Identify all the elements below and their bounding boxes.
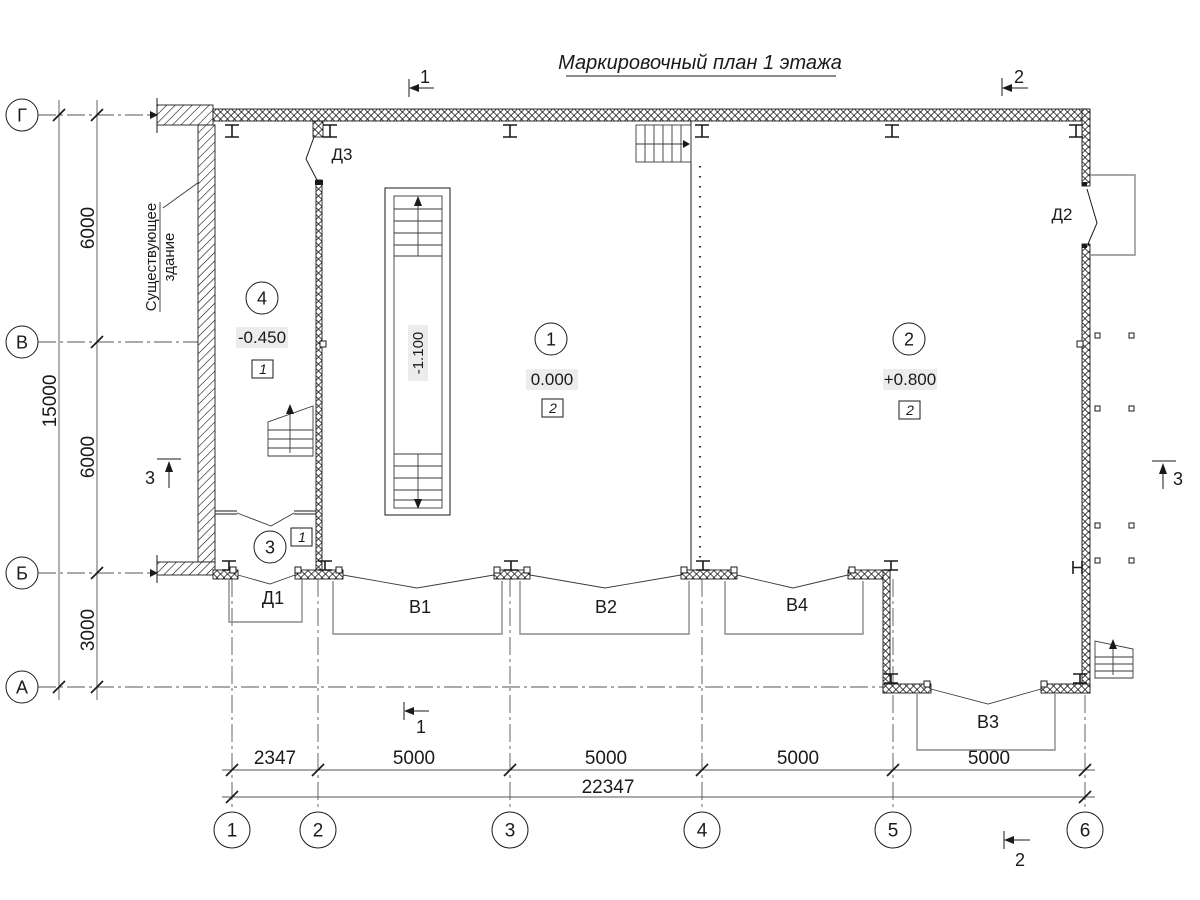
axis-row-v: В — [16, 332, 28, 352]
axis-col-2: 2 — [313, 821, 324, 842]
axis-col-3: 3 — [505, 821, 516, 842]
left-stair-arrow — [286, 404, 294, 414]
room1-elevation: 0.000 — [531, 370, 574, 389]
axis-row-a: А — [16, 677, 28, 697]
room4-number: 4 — [257, 288, 267, 308]
room1-type: 2 — [548, 400, 557, 416]
section-3-left: 3 — [145, 459, 181, 488]
section-2-bottom-label: 2 — [1015, 850, 1025, 870]
room3-door-leaves — [237, 513, 294, 526]
wall-top — [213, 109, 1090, 121]
stair-up-arrow — [414, 196, 422, 206]
gate-v3-label: В3 — [977, 712, 999, 732]
section-1-bottom: 1 — [404, 702, 429, 737]
room-marker-1: 1 0.000 2 — [526, 323, 578, 417]
existing-label-line1: Существующее — [143, 203, 160, 311]
wall-right-upper — [1082, 109, 1090, 186]
gate-v3-symbol — [931, 689, 1041, 704]
axis-row-g: Г — [17, 105, 27, 125]
gate-v4-label: В4 — [786, 595, 808, 615]
existing-building-label: Существующее здание — [143, 202, 178, 312]
room3-number: 3 — [265, 537, 275, 557]
room2-type: 2 — [905, 402, 914, 418]
room2-number: 2 — [904, 329, 914, 349]
title-text: Маркировочный план 1 этажа — [558, 52, 842, 74]
partition-axis4 — [691, 121, 700, 570]
dim-label-5000-1: 5000 — [393, 748, 435, 769]
section-3-left-label: 3 — [145, 468, 155, 488]
top-stair-arrow — [683, 140, 690, 148]
room4-type: 1 — [259, 361, 267, 377]
plan-drawing: 2347 5000 5000 5000 5000 22347 6000 6000… — [0, 0, 1200, 900]
door-d2-leaf — [1087, 189, 1097, 244]
room2-elevation: +0.800 — [884, 370, 936, 389]
section-1-bottom-label: 1 — [416, 717, 426, 737]
doors — [215, 137, 1135, 584]
stair-down-arrow — [414, 499, 422, 509]
axis-row-b: Б — [16, 563, 28, 583]
drawing-title: Маркировочный план 1 этажа — [558, 52, 842, 76]
door-d1-leaf — [238, 575, 295, 584]
element-labels: Д3 Д1 Д2 В1 В2 В4 В3 — [262, 145, 1073, 732]
gate-v4-symbol — [737, 575, 848, 588]
dim-label-6000-2: 6000 — [78, 436, 99, 478]
axis-centerlines — [38, 111, 1085, 811]
wall-b-pier4 — [681, 570, 737, 579]
room-marker-3: 3 1 — [254, 528, 312, 563]
jamb-blocks — [230, 341, 1083, 687]
axis-col-5: 5 — [888, 821, 899, 842]
aprons — [229, 579, 1055, 750]
gate-v2-symbol — [530, 575, 681, 588]
top-stair — [636, 125, 691, 162]
wall-d3-stub — [313, 121, 323, 137]
left-stair — [268, 404, 313, 456]
wall-anchor-squares — [1095, 333, 1134, 563]
dim-label-total: 22347 — [582, 777, 635, 798]
walls — [213, 109, 1090, 693]
pit-stair: -1.100 — [385, 188, 450, 515]
wall-right-lower — [1082, 244, 1090, 693]
door-d3-label: Д3 — [332, 145, 353, 164]
section-2-top: 2 — [1002, 67, 1028, 96]
door-d2-porch — [1090, 175, 1135, 255]
pit-elevation-label: -1.100 — [410, 332, 427, 375]
gate-v1-label: В1 — [409, 597, 431, 617]
existing-label-line2: здание — [161, 233, 178, 282]
dim-label-5000-4: 5000 — [968, 748, 1010, 769]
gate-symbols — [343, 575, 1041, 704]
room-marker-2: 2 +0.800 2 — [883, 323, 937, 419]
section-3-right: 3 — [1152, 461, 1183, 489]
wall-bottom-right — [1041, 684, 1090, 693]
right-stair — [1095, 639, 1133, 678]
room1-number: 1 — [546, 329, 556, 349]
dim-label-6000-1: 6000 — [78, 207, 99, 249]
axis-col-4: 4 — [697, 821, 708, 842]
door-d3-leaf — [306, 137, 317, 180]
section-3-right-label: 3 — [1173, 469, 1183, 489]
floor-plan-sheet: 2347 5000 5000 5000 5000 22347 6000 6000… — [0, 0, 1200, 900]
section-1-top-label: 1 — [420, 67, 430, 87]
dim-label-2347: 2347 — [254, 748, 296, 769]
door-d2-label: Д2 — [1052, 205, 1073, 224]
door-d1-label: Д1 — [262, 588, 284, 608]
dim-label-5000-2: 5000 — [585, 748, 627, 769]
dim-label-3000: 3000 — [78, 609, 99, 651]
steel-columns — [222, 125, 1087, 683]
existing-building-walls — [157, 98, 215, 583]
dim-label-5000-3: 5000 — [777, 748, 819, 769]
section-2-top-label: 2 — [1014, 67, 1024, 87]
section-1-top: 1 — [409, 67, 434, 97]
room4-elevation: -0.450 — [238, 328, 286, 347]
gate-v1-symbol — [343, 575, 494, 588]
gate-v2-label: В2 — [595, 597, 617, 617]
dim-label-15000: 15000 — [40, 375, 61, 428]
axis-bubbles: Г В Б А 1 2 3 4 5 6 — [6, 99, 1103, 848]
wall-partition-axis2 — [316, 180, 322, 570]
section-2-bottom: 2 — [1004, 831, 1030, 870]
existing-leader-line — [163, 182, 199, 208]
axis-col-1: 1 — [227, 821, 238, 842]
room3-type: 1 — [298, 529, 306, 545]
axis-col-6: 6 — [1080, 821, 1091, 842]
room-marker-4: 4 -0.450 1 — [236, 282, 288, 378]
